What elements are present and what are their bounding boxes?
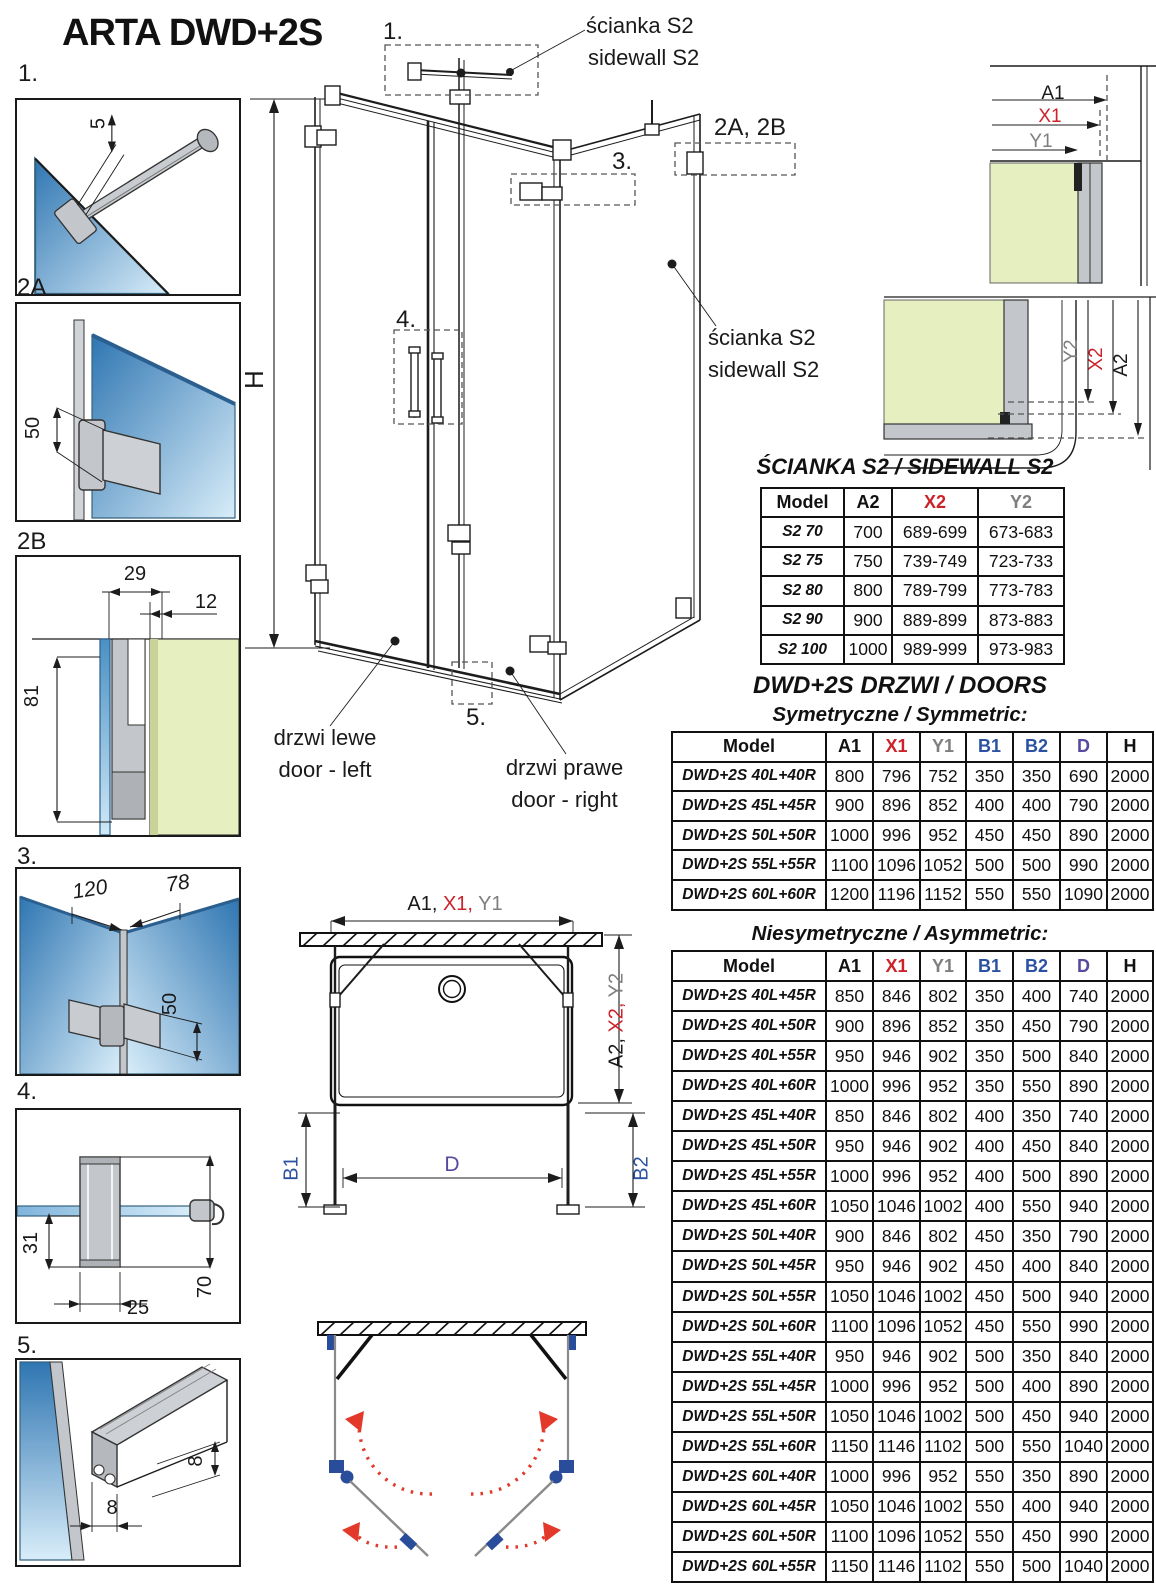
value-cell: 946 — [873, 1041, 920, 1071]
value-cell: 550 — [966, 1552, 1013, 1582]
value-cell: 990 — [1060, 1312, 1107, 1342]
value-cell: 840 — [1060, 1342, 1107, 1372]
value-cell: 450 — [966, 1251, 1013, 1281]
swing-left-door — [327, 1335, 432, 1556]
table-row: DWD+2S 45L+50R9509469024004508402000 — [672, 1131, 1153, 1161]
value-cell: 952 — [920, 1372, 966, 1402]
plan-y1: Y1 — [473, 893, 503, 915]
detail-5-dim-8-bottom: 8 — [100, 1497, 124, 1520]
value-cell: 900 — [826, 1011, 873, 1041]
column-header: Y1 — [920, 732, 966, 762]
column-header: A2 — [844, 488, 892, 517]
value-cell: 1000 — [826, 1372, 873, 1402]
detail-5-dim-8-right: 8 — [185, 1449, 215, 1473]
value-cell: 1052 — [920, 850, 966, 880]
model-cell: DWD+2S 60L+50R — [672, 1522, 826, 1552]
swing-wall — [318, 1322, 586, 1335]
corner-top-y1: Y1 — [1026, 131, 1056, 153]
column-header: A1 — [826, 951, 873, 981]
value-cell: 996 — [873, 1372, 920, 1402]
value-cell: 902 — [920, 1251, 966, 1281]
door-left-label-pl: drzwi lewe — [260, 726, 390, 749]
table-row: DWD+2S 60L+60R12001196115255055010902000 — [672, 880, 1153, 910]
model-cell: DWD+2S 55L+40R — [672, 1342, 826, 1372]
door-swing-drawing — [295, 1310, 660, 1588]
sidewall-right-label-pl: ścianka S2 — [708, 326, 816, 349]
model-cell: DWD+2S 60L+55R — [672, 1552, 826, 1582]
model-cell: S2 75 — [761, 547, 844, 576]
profile-notch — [128, 639, 145, 725]
value-cell: 450 — [966, 821, 1013, 851]
model-cell: DWD+2S 40L+45R — [672, 981, 826, 1011]
value-cell: 802 — [920, 1101, 966, 1131]
table-row: S2 75750739-749723-733 — [761, 547, 1064, 576]
value-cell: 940 — [1060, 1492, 1107, 1522]
table-row: DWD+2S 45L+45R9008968524004007902000 — [672, 791, 1153, 821]
value-cell: 902 — [920, 1131, 966, 1161]
detail-2a-svg — [17, 304, 239, 520]
value-cell: 1040 — [1060, 1552, 1107, 1582]
value-cell: 796 — [873, 762, 920, 792]
glass-left — [20, 897, 120, 1074]
value-cell: 996 — [873, 821, 920, 851]
value-cell: 1152 — [920, 880, 966, 910]
value-cell: 689-699 — [892, 517, 978, 546]
value-cell: 1040 — [1060, 1432, 1107, 1462]
value-cell: 1146 — [873, 1552, 920, 1582]
value-cell: 1050 — [826, 1282, 873, 1312]
bracket-clamp — [79, 420, 105, 490]
model-cell: DWD+2S 50L+50R — [672, 821, 826, 851]
door-handle — [409, 347, 443, 423]
model-cell: DWD+2S 55L+55R — [672, 850, 826, 880]
value-cell: 890 — [1060, 1161, 1107, 1191]
value-cell: 740 — [1060, 1101, 1107, 1131]
value-cell: 350 — [966, 981, 1013, 1011]
value-cell: 890 — [1060, 1372, 1107, 1402]
value-cell: 1100 — [826, 1522, 873, 1552]
value-cell: 890 — [1060, 1071, 1107, 1101]
value-cell: 789-799 — [892, 576, 978, 605]
hinges-and-brackets — [305, 86, 703, 654]
value-cell: 739-749 — [892, 547, 978, 576]
main-callout-4: 4. — [396, 306, 416, 334]
door-left-label-en: door - left — [260, 758, 390, 781]
model-cell: DWD+2S 60L+60R — [672, 880, 826, 910]
handle-post — [80, 1157, 120, 1267]
value-cell: 950 — [826, 1131, 873, 1161]
value-cell: 952 — [920, 1462, 966, 1492]
table-row: DWD+2S 60L+45R1050104610025504009402000 — [672, 1492, 1153, 1522]
table-row: DWD+2S 45L+55R10009969524005008902000 — [672, 1161, 1153, 1191]
hinge-barrel — [100, 1006, 124, 1046]
model-cell: DWD+2S 55L+50R — [672, 1402, 826, 1432]
value-cell: 2000 — [1107, 1462, 1153, 1492]
detail-1-svg — [17, 100, 239, 294]
value-cell: 846 — [873, 1221, 920, 1251]
value-cell: 952 — [920, 1161, 966, 1191]
table-row: S2 70700689-699673-683 — [761, 517, 1064, 546]
value-cell: 1050 — [826, 1191, 873, 1221]
value-cell: 1050 — [826, 1402, 873, 1432]
detail-3-drawing — [15, 867, 241, 1076]
value-cell: 550 — [1013, 1191, 1060, 1221]
value-cell: 902 — [920, 1342, 966, 1372]
value-cell: 1100 — [826, 850, 873, 880]
value-cell: 350 — [966, 762, 1013, 792]
sidewall-s2-table: ModelA2X2Y2S2 70700689-699673-683S2 7575… — [760, 487, 1065, 665]
value-cell: 500 — [1013, 1282, 1060, 1312]
table-row: DWD+2S 50L+55R1050104610024505009402000 — [672, 1282, 1153, 1312]
value-cell: 1046 — [873, 1402, 920, 1432]
value-cell: 990 — [1060, 1522, 1107, 1552]
value-cell: 790 — [1060, 791, 1107, 821]
corner-profile — [120, 930, 127, 1074]
column-header: A1 — [826, 732, 873, 762]
value-cell: 450 — [966, 1282, 1013, 1312]
value-cell: 1150 — [826, 1432, 873, 1462]
value-cell: 973-983 — [978, 635, 1064, 664]
value-cell: 2000 — [1107, 1191, 1153, 1221]
value-cell: 450 — [1013, 1522, 1060, 1552]
spec-sheet-page: ARTA DWD+2S 1. 5 2A — [0, 0, 1156, 1588]
column-header: H — [1107, 732, 1153, 762]
value-cell: 802 — [920, 981, 966, 1011]
swing-right-door — [471, 1335, 576, 1556]
value-cell: 940 — [1060, 1191, 1107, 1221]
value-cell: 952 — [920, 1071, 966, 1101]
value-cell: 946 — [873, 1251, 920, 1281]
value-cell: 950 — [826, 1251, 873, 1281]
plan-a1: A1, — [407, 893, 443, 915]
model-cell: DWD+2S 45L+60R — [672, 1191, 826, 1221]
value-cell: 2000 — [1107, 1071, 1153, 1101]
value-cell: 2000 — [1107, 1312, 1153, 1342]
table-row: DWD+2S 50L+60R1100109610524505509902000 — [672, 1312, 1153, 1342]
value-cell: 550 — [1013, 880, 1060, 910]
model-cell: S2 100 — [761, 635, 844, 664]
model-cell: DWD+2S 50L+60R — [672, 1312, 826, 1342]
model-cell: DWD+2S 40L+50R — [672, 1011, 826, 1041]
value-cell: 2000 — [1107, 1492, 1153, 1522]
column-header: B1 — [966, 951, 1013, 981]
value-cell: 989-999 — [892, 635, 978, 664]
value-cell: 840 — [1060, 1131, 1107, 1161]
value-cell: 946 — [873, 1131, 920, 1161]
main-callout-1: 1. — [383, 18, 403, 46]
value-cell: 2000 — [1107, 791, 1153, 821]
table-row: DWD+2S 50L+40R9008468024503507902000 — [672, 1221, 1153, 1251]
value-cell: 700 — [844, 517, 892, 546]
asymmetric-subtitle: Niesymetryczne / Asymmetric: — [660, 922, 1140, 946]
detail-1-dim-5: 5 — [88, 113, 111, 135]
table-row: DWD+2S 55L+40R9509469025003508402000 — [672, 1342, 1153, 1372]
value-cell: 889-899 — [892, 606, 978, 635]
value-cell: 800 — [844, 576, 892, 605]
value-cell: 2000 — [1107, 1011, 1153, 1041]
detail-5-label: 5. — [17, 1332, 37, 1360]
profile-foot — [112, 772, 145, 819]
value-cell: 450 — [1013, 1011, 1060, 1041]
table-row: S2 1001000989-999973-983 — [761, 635, 1064, 664]
value-cell: 450 — [966, 1221, 1013, 1251]
plan-top-dimension — [331, 916, 573, 933]
value-cell: 400 — [966, 1101, 1013, 1131]
corner-detail-side — [878, 290, 1156, 475]
glass-panel — [92, 335, 235, 518]
plan-tray — [331, 957, 572, 1105]
value-cell: 350 — [966, 1041, 1013, 1071]
plan-x2: X2, — [606, 1003, 628, 1033]
value-cell: 1096 — [873, 850, 920, 880]
table-row: DWD+2S 55L+45R10009969525004008902000 — [672, 1372, 1153, 1402]
value-cell: 752 — [920, 762, 966, 792]
asymmetric-doors-table: ModelA1X1Y1B1B2DHDWD+2S 40L+45R850846802… — [671, 950, 1154, 1583]
value-cell: 1000 — [826, 1161, 873, 1191]
value-cell: 2000 — [1107, 1131, 1153, 1161]
table-row: DWD+2S 50L+50R10009969524504508902000 — [672, 821, 1153, 851]
plan-top-dim-label: A1, X1, Y1 — [380, 893, 530, 916]
value-cell: 902 — [920, 1041, 966, 1071]
value-cell: 500 — [1013, 850, 1060, 880]
value-cell: 400 — [1013, 1251, 1060, 1281]
column-header: Model — [761, 488, 844, 517]
value-cell: 500 — [966, 1342, 1013, 1372]
column-header: D — [1060, 732, 1107, 762]
glass-panel — [884, 300, 1004, 424]
height-label: H — [241, 357, 267, 389]
table-row: S2 80800789-799773-783 — [761, 576, 1064, 605]
value-cell: 2000 — [1107, 1552, 1153, 1582]
value-cell: 900 — [844, 606, 892, 635]
value-cell: 2000 — [1107, 1522, 1153, 1552]
detail-2b-dim-81: 81 — [21, 682, 57, 710]
value-cell: 1000 — [826, 821, 873, 851]
detail-2a-dim-50: 50 — [22, 416, 62, 440]
value-cell: 550 — [1013, 1071, 1060, 1101]
value-cell: 1052 — [920, 1522, 966, 1552]
corner-top-a1: A1 — [1038, 83, 1068, 105]
door-right-label-pl: drzwi prawe — [492, 756, 637, 779]
value-cell: 850 — [826, 1101, 873, 1131]
column-header: X1 — [873, 951, 920, 981]
value-cell: 1046 — [873, 1492, 920, 1522]
value-cell: 896 — [873, 1011, 920, 1041]
value-cell: 400 — [1013, 981, 1060, 1011]
value-cell: 890 — [1060, 1462, 1107, 1492]
value-cell: 450 — [1013, 1402, 1060, 1432]
doors-table-title: DWD+2S DRZWI / DOORS — [660, 672, 1140, 700]
value-cell: 2000 — [1107, 1041, 1153, 1071]
value-cell: 500 — [1013, 1041, 1060, 1071]
value-cell: 1046 — [873, 1282, 920, 1312]
value-cell: 2000 — [1107, 762, 1153, 792]
value-cell: 2000 — [1107, 1161, 1153, 1191]
sidewall-top-label-pl: ścianka S2 — [586, 14, 694, 37]
value-cell: 2000 — [1107, 1282, 1153, 1312]
plan-a2: A2, — [606, 1033, 628, 1069]
value-cell: 950 — [826, 1342, 873, 1372]
plan-d-label: D — [442, 1153, 462, 1177]
value-cell: 896 — [873, 791, 920, 821]
model-cell: DWD+2S 55L+60R — [672, 1432, 826, 1462]
value-cell: 790 — [1060, 1011, 1107, 1041]
model-cell: DWD+2S 45L+55R — [672, 1161, 826, 1191]
value-cell: 940 — [1060, 1282, 1107, 1312]
value-cell: 1100 — [826, 1312, 873, 1342]
detail-2b-label: 2B — [17, 528, 46, 556]
plan-x1: X1, — [443, 893, 473, 915]
value-cell: 500 — [1013, 1552, 1060, 1582]
value-cell: 723-733 — [978, 547, 1064, 576]
column-header: X2 — [892, 488, 978, 517]
value-cell: 350 — [1013, 762, 1060, 792]
sidewall-right-label-en: sidewall S2 — [708, 358, 819, 381]
value-cell: 1146 — [873, 1432, 920, 1462]
plan-side-dim-label: A2, X2, Y2 — [606, 936, 629, 1106]
glass-panel — [100, 639, 110, 835]
value-cell: 450 — [966, 1312, 1013, 1342]
value-cell: 1000 — [826, 1462, 873, 1492]
value-cell: 500 — [966, 1372, 1013, 1402]
detail-2b-dim-12: 12 — [191, 591, 221, 614]
model-cell: DWD+2S 60L+45R — [672, 1492, 826, 1522]
value-cell: 1150 — [826, 1552, 873, 1582]
value-cell: 2000 — [1107, 1402, 1153, 1432]
value-cell: 890 — [1060, 821, 1107, 851]
value-cell: 1002 — [920, 1402, 966, 1432]
corner-top-x1: X1 — [1035, 106, 1065, 128]
symmetric-subtitle: Symetryczne / Symmetric: — [660, 703, 1140, 727]
value-cell: 873-883 — [978, 606, 1064, 635]
s2-table-title: ŚCIANKA S2 / SIDEWALL S2 — [735, 454, 1075, 480]
detail-2b-dim-29: 29 — [118, 563, 152, 586]
value-cell: 450 — [1013, 1131, 1060, 1161]
value-cell: 1002 — [920, 1191, 966, 1221]
model-cell: DWD+2S 60L+40R — [672, 1462, 826, 1492]
value-cell: 996 — [873, 1462, 920, 1492]
value-cell: 2000 — [1107, 821, 1153, 851]
door-right-label-en: door - right — [492, 788, 637, 811]
profile-bottom — [884, 424, 1032, 439]
column-header: B2 — [1013, 951, 1060, 981]
table-row: DWD+2S 60L+40R10009969525503508902000 — [672, 1462, 1153, 1492]
value-cell: 400 — [966, 1131, 1013, 1161]
seal — [1074, 163, 1082, 191]
model-cell: DWD+2S 55L+45R — [672, 1372, 826, 1402]
value-cell: 950 — [826, 1041, 873, 1071]
glass-plan — [990, 163, 1078, 283]
value-cell: 2000 — [1107, 880, 1153, 910]
model-cell: DWD+2S 40L+60R — [672, 1071, 826, 1101]
value-cell: 1196 — [873, 880, 920, 910]
column-header: X1 — [873, 732, 920, 762]
column-header: Y2 — [978, 488, 1064, 517]
main-callout-5: 5. — [466, 704, 486, 732]
value-cell: 2000 — [1107, 1372, 1153, 1402]
detail-4-label: 4. — [17, 1078, 37, 1106]
value-cell: 740 — [1060, 981, 1107, 1011]
model-cell: DWD+2S 40L+40R — [672, 762, 826, 792]
main-callout-3: 3. — [612, 148, 632, 176]
value-cell: 846 — [873, 981, 920, 1011]
value-cell: 1102 — [920, 1432, 966, 1462]
model-cell: DWD+2S 45L+45R — [672, 791, 826, 821]
value-cell: 2000 — [1107, 850, 1153, 880]
model-cell: DWD+2S 50L+55R — [672, 1282, 826, 1312]
value-cell: 1000 — [826, 1071, 873, 1101]
value-cell: 1102 — [920, 1552, 966, 1582]
table-row: DWD+2S 40L+45R8508468023504007402000 — [672, 981, 1153, 1011]
plan-b1-label: B1 — [281, 1149, 304, 1189]
value-cell: 350 — [1013, 1462, 1060, 1492]
value-cell: 500 — [966, 850, 1013, 880]
table-row: DWD+2S 55L+55R1100109610525005009902000 — [672, 850, 1153, 880]
value-cell: 2000 — [1107, 1221, 1153, 1251]
value-cell: 946 — [873, 1342, 920, 1372]
detail-1-drawing — [15, 98, 241, 296]
value-cell: 840 — [1060, 1251, 1107, 1281]
table-row: DWD+2S 40L+50R9008968523504507902000 — [672, 1011, 1153, 1041]
value-cell: 400 — [1013, 791, 1060, 821]
value-cell: 1052 — [920, 1312, 966, 1342]
value-cell: 1096 — [873, 1522, 920, 1552]
model-cell: DWD+2S 40L+55R — [672, 1041, 826, 1071]
table-row: S2 90900889-899873-883 — [761, 606, 1064, 635]
value-cell: 350 — [1013, 1342, 1060, 1372]
model-cell: DWD+2S 50L+40R — [672, 1221, 826, 1251]
table-row: DWD+2S 45L+60R1050104610024005509402000 — [672, 1191, 1153, 1221]
value-cell: 1096 — [873, 1312, 920, 1342]
detail-3-dim-50: 50 — [159, 990, 195, 1018]
plan-wall — [300, 933, 602, 946]
glass-right — [127, 899, 239, 1074]
table-row: DWD+2S 50L+45R9509469024504008402000 — [672, 1251, 1153, 1281]
wall-panel — [150, 639, 239, 835]
value-cell: 940 — [1060, 1402, 1107, 1432]
value-cell: 996 — [873, 1071, 920, 1101]
enclosure-glass-lines — [315, 58, 700, 703]
value-cell: 1090 — [1060, 880, 1107, 910]
table-row: DWD+2S 40L+40R8007967523503506902000 — [672, 762, 1153, 792]
value-cell: 852 — [920, 1011, 966, 1041]
value-cell: 400 — [966, 791, 1013, 821]
column-header: H — [1107, 951, 1153, 981]
value-cell: 900 — [826, 791, 873, 821]
model-cell: DWD+2S 45L+50R — [672, 1131, 826, 1161]
detail-2a-label: 2A — [17, 274, 46, 302]
column-header: Y1 — [920, 951, 966, 981]
value-cell: 400 — [1013, 1492, 1060, 1522]
value-cell: 840 — [1060, 1041, 1107, 1071]
detail-2a-drawing — [15, 302, 241, 522]
value-cell: 550 — [1013, 1312, 1060, 1342]
table-row: DWD+2S 45L+40R8508468024003507402000 — [672, 1101, 1153, 1131]
wall-edge — [150, 639, 158, 835]
value-cell: 1002 — [920, 1492, 966, 1522]
table-row: DWD+2S 40L+60R10009969523505508902000 — [672, 1071, 1153, 1101]
plan-b2-label: B2 — [631, 1149, 654, 1189]
column-header: D — [1060, 951, 1107, 981]
value-cell: 800 — [826, 762, 873, 792]
value-cell: 850 — [826, 981, 873, 1011]
model-cell: S2 90 — [761, 606, 844, 635]
value-cell: 2000 — [1107, 1101, 1153, 1131]
value-cell: 2000 — [1107, 1432, 1153, 1462]
value-cell: 350 — [1013, 1221, 1060, 1251]
value-cell: 350 — [966, 1071, 1013, 1101]
table-row: DWD+2S 55L+50R1050104610025004509402000 — [672, 1402, 1153, 1432]
